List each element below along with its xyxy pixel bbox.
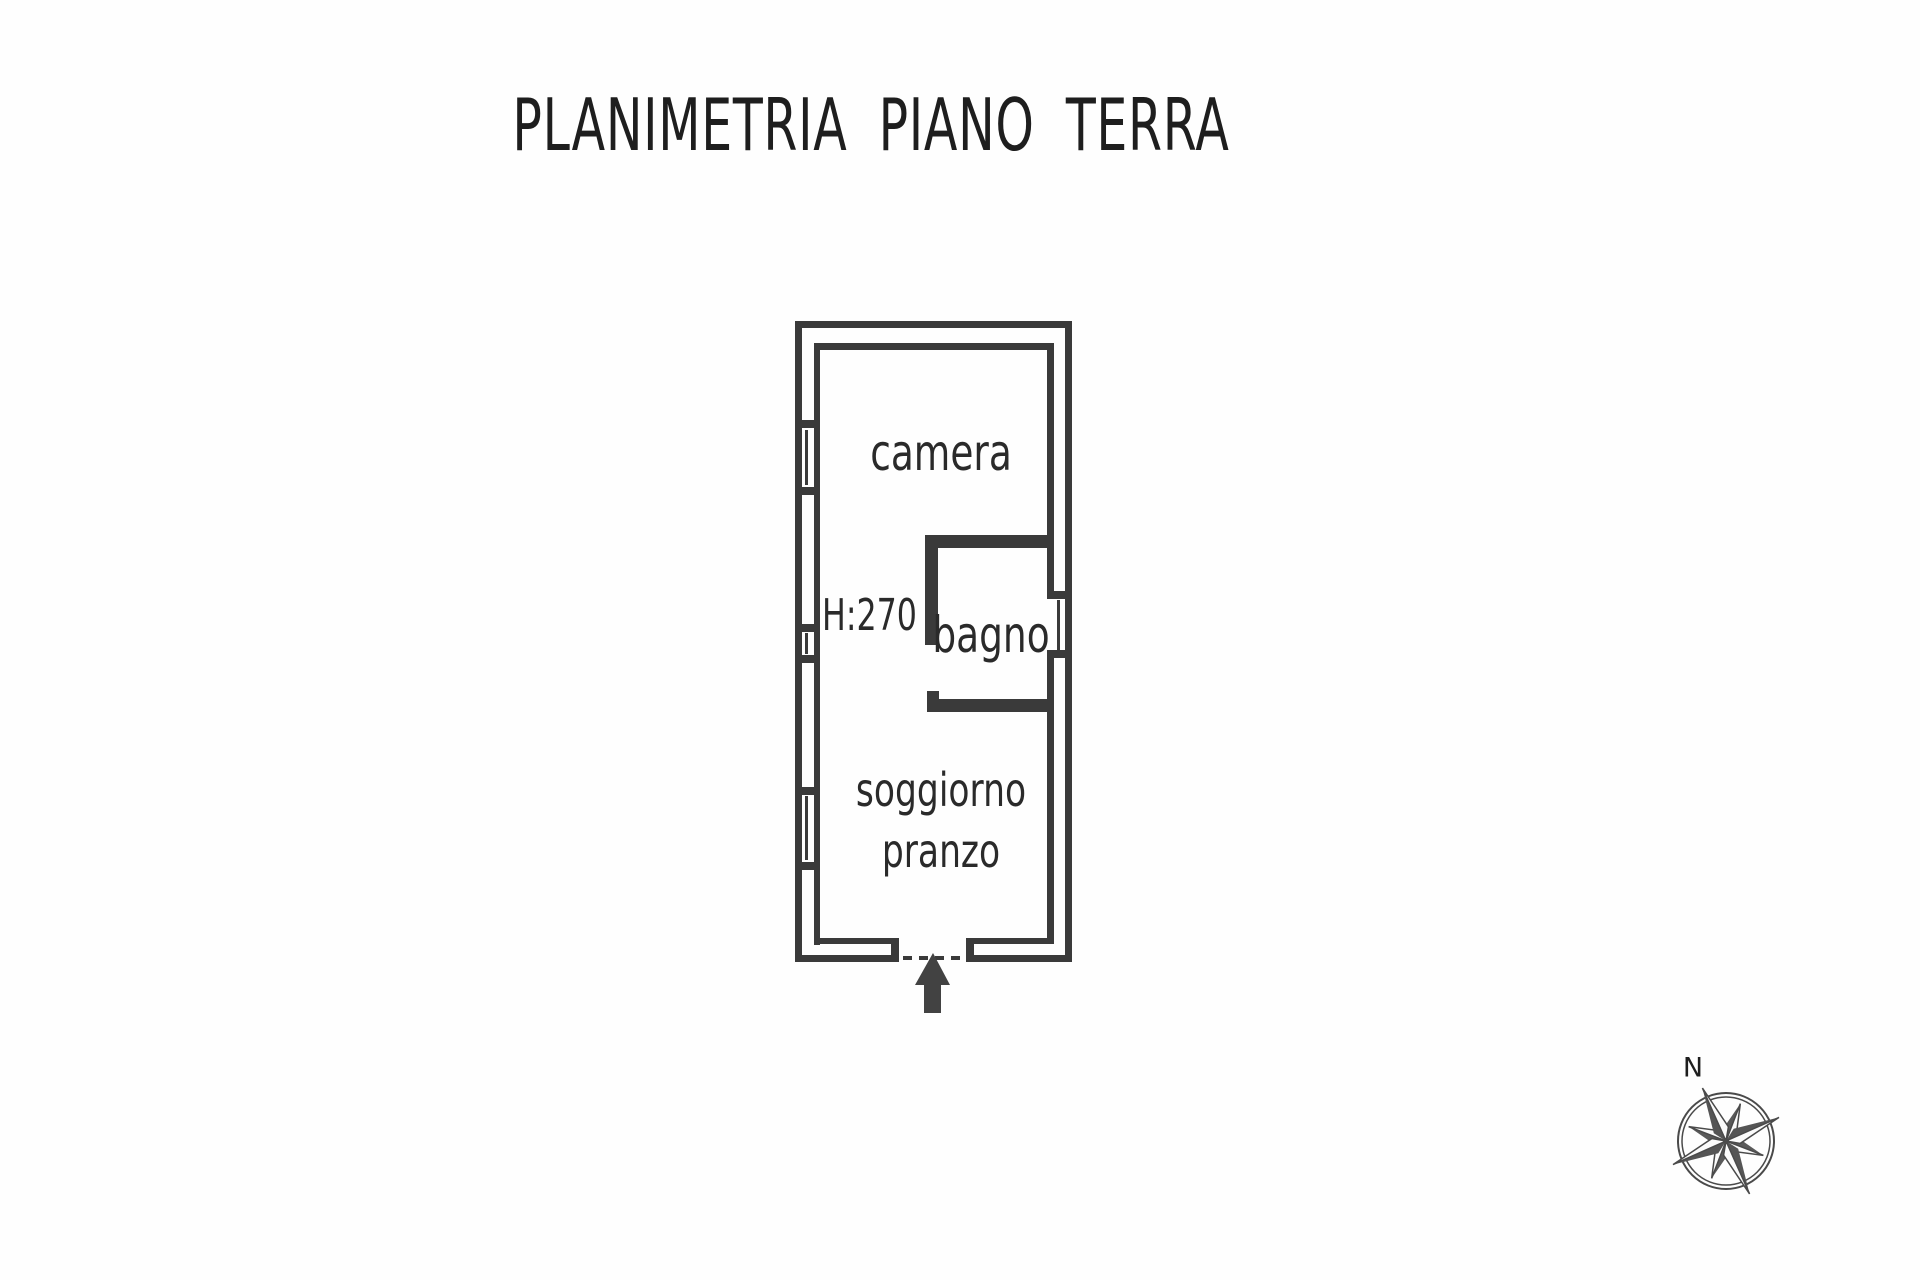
wall-right-outer: [1065, 321, 1072, 962]
page-title: PLANIMETRIA PIANO TERRA: [512, 86, 1229, 165]
bagno-wall-bottom-nub: [927, 691, 939, 699]
compass-north-label: N: [1683, 1055, 1703, 1082]
wall-bottom-left-inner: [818, 938, 899, 944]
window-left-middle: [805, 633, 808, 654]
window-left-lower: [805, 796, 808, 860]
ceiling-height-label: H:270: [822, 594, 917, 638]
wall-bottom-right-outer: [966, 955, 1072, 962]
bagno-wall-top: [925, 535, 1047, 548]
room-label-soggiorno: soggiorno: [856, 767, 1026, 813]
window-right-bagno: [1057, 600, 1060, 650]
compass-rose: [1649, 1064, 1802, 1217]
wall-left-inner: [814, 343, 820, 945]
wall-top-inner: [818, 343, 1050, 350]
room-label-pranzo: pranzo: [882, 828, 1000, 874]
bagno-wall-bottom: [927, 699, 1047, 712]
compass-center-dot: [1723, 1138, 1729, 1144]
wall-right-inner-lower: [1047, 658, 1054, 938]
scanned-floor-plan-page: PLANIMETRIA PIANO TERRA camera H:270 bag…: [0, 0, 1920, 1280]
wall-bottom-left-outer: [795, 955, 899, 962]
wall-top-outer: [795, 321, 1072, 328]
wall-bottom-right-inner: [966, 938, 1054, 944]
door-jamb-left: [891, 938, 899, 962]
door-jamb-right: [966, 938, 974, 962]
entrance-arrow: [915, 953, 950, 1013]
wall-right-inner-upper: [1047, 343, 1054, 591]
room-label-bagno: bagno: [932, 610, 1049, 660]
window-left-upper: [805, 430, 808, 485]
room-label-camera: camera: [870, 428, 1012, 478]
